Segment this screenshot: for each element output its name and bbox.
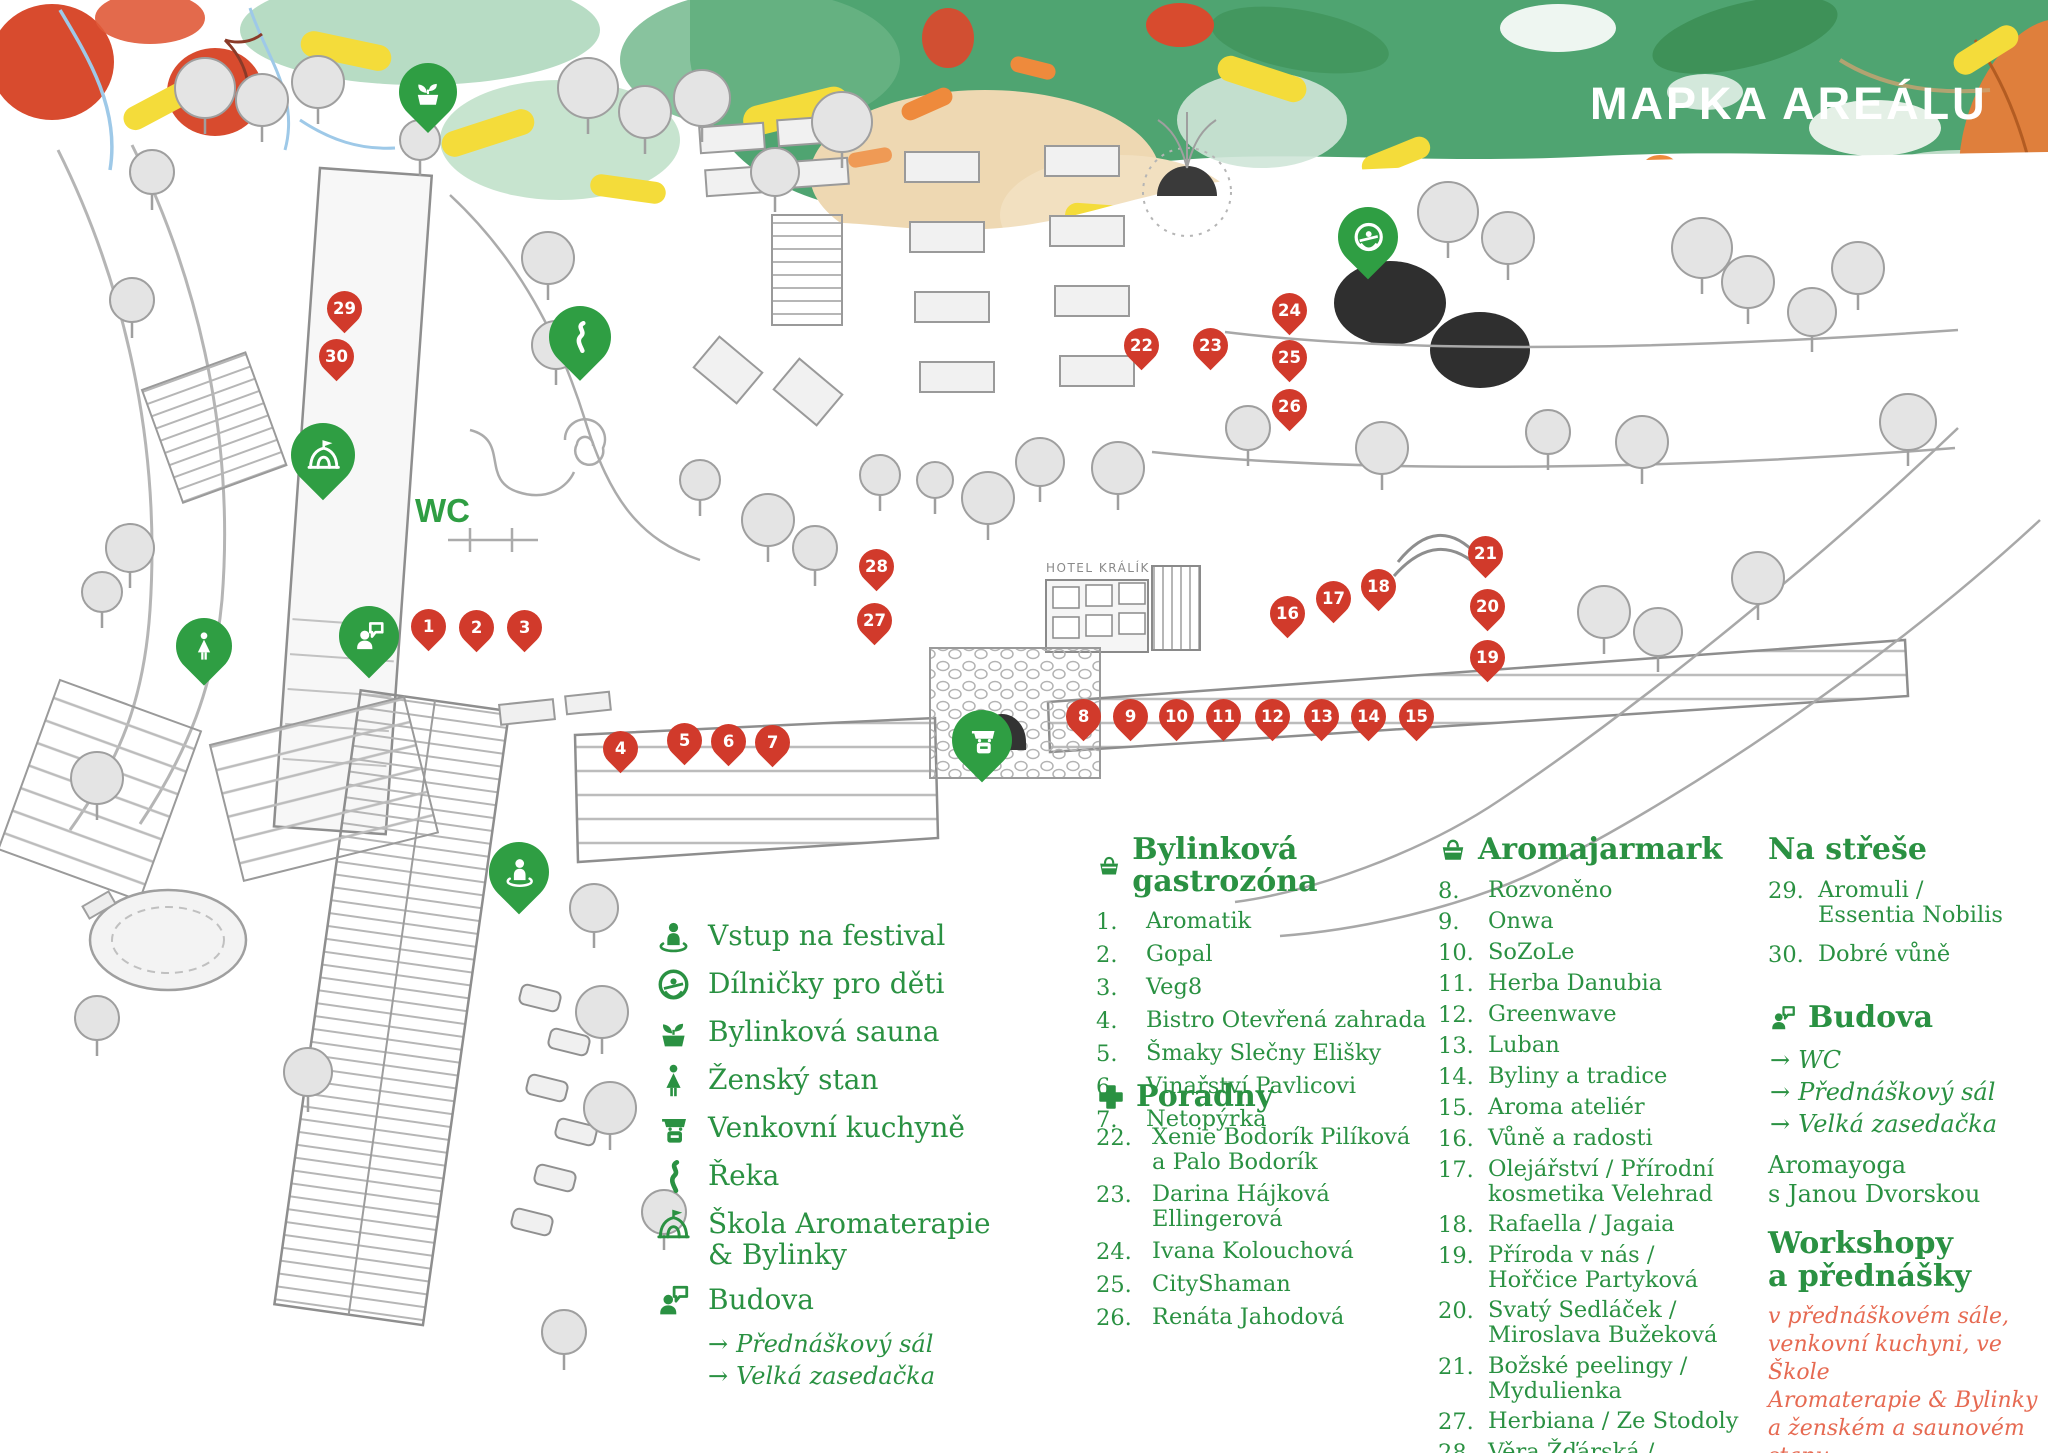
section-title: Budova [1808, 1002, 1933, 1034]
kitchen-icon [655, 1110, 692, 1147]
sauna-icon [655, 1014, 692, 1051]
section-aromajarmark: Aromajarmark 8.Rozvoněno9.Onwa10.SoZoLe1… [1438, 834, 1778, 1453]
list-item-name: Aromatik [1146, 909, 1448, 935]
list-item-name: Olejářství / Přírodní kosmetika Velehrad [1488, 1157, 1778, 1207]
map-pin-kids [1338, 207, 1398, 267]
list-item-name: CityShaman [1152, 1272, 1462, 1298]
map-pin-24: 24 [1272, 293, 1307, 328]
map-pin-river [549, 306, 611, 368]
entry-icon [502, 855, 537, 890]
list-item-number: 10. [1438, 940, 1488, 966]
list-item-name: Věra Žďárská / Květomluva [1488, 1440, 1778, 1453]
list-item-name: Byliny a tradice [1488, 1064, 1778, 1090]
map-pin-23: 23 [1193, 328, 1228, 363]
kids-icon [1351, 220, 1386, 255]
legend-item-label: Venkovní kuchyně [708, 1110, 965, 1143]
sauna-icon [411, 75, 445, 109]
map-pin-1: 1 [411, 609, 446, 644]
workshops-note: v přednáškovém sále, venkovní kuchyni, v… [1768, 1303, 2048, 1453]
legend-item-label: Budova [708, 1282, 814, 1315]
map-pin-14: 14 [1351, 699, 1386, 734]
section-aromajarmark-header: Aromajarmark [1438, 834, 1778, 866]
section-title: Bylinková gastrozóna [1132, 834, 1448, 897]
list-item-name: Herbiana / Ze Stodoly [1488, 1409, 1778, 1435]
legend-item: Dílničky pro děti [655, 966, 1000, 1003]
map-pin-16: 16 [1270, 596, 1305, 631]
list-item-number: 8. [1438, 878, 1488, 904]
river-icon [655, 1158, 692, 1195]
arrow-icon: → [708, 1362, 728, 1390]
list-item-name: Šmaky Slečny Elišky [1146, 1041, 1448, 1067]
kitchen-icon [965, 723, 1000, 758]
list-item-name: Veg8 [1146, 975, 1448, 1001]
list-item-number: 14. [1438, 1064, 1488, 1090]
map-pin-sauna [399, 63, 457, 121]
section-budova-header: Budova [1768, 1002, 2048, 1034]
list-item-number: 4. [1096, 1008, 1146, 1034]
map-pin-7: 7 [755, 725, 790, 760]
list-item-number: 18. [1438, 1212, 1488, 1238]
legend-item-label: Ženský stan [708, 1062, 878, 1095]
budova-arrow-item: →Velká zasedačka [1770, 1109, 2048, 1141]
festival-area-map: HOTEL KRÁLÍK [0, 0, 2048, 1453]
building-icon [352, 619, 387, 654]
workshops-title: Workshopy a přednášky [1768, 1227, 2048, 1293]
list-item-name: Herba Danubia [1488, 971, 1778, 997]
budova-arrow-item: →Přednáškový sál [1770, 1077, 2048, 1109]
budova-arrow-list: →WC→Přednáškový sál→Velká zasedačka [1770, 1045, 2048, 1141]
woman-icon [655, 1062, 692, 1099]
arrow-icon: → [708, 1330, 728, 1358]
woman-icon [188, 630, 220, 662]
section-poradny: Poradny 22.Xenie Bodorík Pilíková a Palo… [1096, 1081, 1462, 1331]
map-pin-26: 26 [1272, 389, 1307, 424]
map-wc-label: WC [415, 492, 470, 530]
map-pin-22: 22 [1124, 328, 1159, 363]
list-item-number: 21. [1438, 1354, 1488, 1404]
legend-item-label: Bylinková sauna [708, 1014, 939, 1047]
arrow-icon: → [1770, 1046, 1790, 1074]
list-item-number: 27. [1438, 1409, 1488, 1435]
list-item-name: Bistro Otevřená zahrada [1146, 1008, 1448, 1034]
cross-icon [1096, 1082, 1126, 1112]
legend-item-label: Vstup na festival [708, 918, 945, 951]
list-item-number: 24. [1096, 1239, 1152, 1265]
list-item-number: 15. [1438, 1095, 1488, 1121]
map-pin-18: 18 [1361, 569, 1396, 604]
section-title: Poradny [1136, 1081, 1273, 1113]
map-pin-13: 13 [1304, 699, 1339, 734]
school-icon [655, 1206, 692, 1243]
section-right-column: Na střeše 29.Aromuli / Essentia Nobilis3… [1768, 834, 2048, 1453]
map-pin-27: 27 [857, 603, 892, 638]
map-pin-building [339, 606, 399, 666]
legend-item: Řeka [655, 1158, 1000, 1195]
list-item-name: Dobré vůně [1818, 942, 2048, 968]
legend-item: Vstup na festival [655, 918, 1000, 955]
list-item-number: 3. [1096, 975, 1146, 1001]
map-hotel-label: HOTEL KRÁLÍK [1046, 560, 1150, 575]
list-item-number: 17. [1438, 1157, 1488, 1207]
legend-item-label: Škola Aromaterapie & Bylinky [708, 1206, 991, 1271]
section-title: Aromajarmark [1478, 834, 1722, 866]
list-item-number: 29. [1768, 878, 1818, 928]
list-item-name: Luban [1488, 1033, 1778, 1059]
map-pin-30: 30 [319, 339, 354, 374]
list-item-number: 1. [1096, 909, 1146, 935]
map-pin-12: 12 [1255, 699, 1290, 734]
legend-item-label: Dílničky pro děti [708, 966, 944, 999]
legend-subitems: →Přednáškový sál→Velká zasedačka [708, 1328, 1000, 1393]
kids-icon [655, 966, 692, 1003]
section-gastrozone-header: Bylinková gastrozóna [1096, 834, 1448, 897]
map-pin-2: 2 [459, 610, 494, 645]
legend-item: Budova [655, 1282, 1000, 1319]
section-roof-header: Na střeše [1768, 834, 2048, 866]
map-pin-woman [176, 618, 232, 674]
list-item-name: Renáta Jahodová [1152, 1305, 1462, 1331]
building-icon [655, 1282, 692, 1319]
list-item-number: 9. [1438, 909, 1488, 935]
list-item-number: 22. [1096, 1125, 1152, 1175]
list-item-number: 28. [1438, 1440, 1488, 1453]
list-item-name: Božské peelingy / Mydulienka [1488, 1354, 1778, 1404]
list-item-number: 12. [1438, 1002, 1488, 1028]
map-pin-17: 17 [1316, 581, 1351, 616]
list-item-name: Rozvoněno [1488, 878, 1778, 904]
map-pin-school [291, 423, 355, 487]
map-pin-29: 29 [327, 291, 362, 326]
map-pin-8: 8 [1066, 699, 1101, 734]
list-item-number: 23. [1096, 1182, 1152, 1232]
list-item-number: 11. [1438, 971, 1488, 997]
list-item-number: 20. [1438, 1298, 1488, 1348]
list-item-name: Příroda v nás / Hořčice Partyková [1488, 1243, 1778, 1293]
list-item-name: Svatý Sedláček / Miroslava Bužeková [1488, 1298, 1778, 1348]
map-pin-kitchen [952, 710, 1012, 770]
legend-item: Venkovní kuchyně [655, 1110, 1000, 1147]
budova-arrow-item: →WC [1770, 1045, 2048, 1077]
school-icon [305, 437, 342, 474]
river-icon [562, 319, 598, 355]
list-item-name: Aroma ateliér [1488, 1095, 1778, 1121]
page-title: MAPKA AREÁLU [1590, 78, 1988, 130]
arrow-icon: → [1770, 1078, 1790, 1106]
list-item-number: 16. [1438, 1126, 1488, 1152]
list-item-name: SoZoLe [1488, 940, 1778, 966]
list-item-name: Onwa [1488, 909, 1778, 935]
entry-icon [655, 918, 692, 955]
map-pin-21: 21 [1468, 536, 1503, 571]
list-item-name: Ivana Kolouchová [1152, 1239, 1462, 1265]
map-pin-9: 9 [1113, 699, 1148, 734]
map-pin-11: 11 [1206, 699, 1241, 734]
list-item-name: Rafaella / Jagaia [1488, 1212, 1778, 1238]
basket-icon [1096, 851, 1122, 881]
section-title: Na střeše [1768, 834, 1927, 866]
legend-general: Vstup na festivalDílničky pro dětiBylink… [655, 918, 1000, 1393]
legend-subitem: →Přednáškový sál [708, 1328, 1000, 1360]
budova-extra: Aromayoga s Janou Dvorskou [1768, 1151, 2048, 1209]
map-pin-4: 4 [603, 731, 638, 766]
map-pin-3: 3 [507, 610, 542, 645]
map-pin-19: 19 [1470, 640, 1505, 675]
list-item-number: 13. [1438, 1033, 1488, 1059]
legend-item: Ženský stan [655, 1062, 1000, 1099]
list-item-number: 5. [1096, 1041, 1146, 1067]
list-item-name: Aromuli / Essentia Nobilis [1818, 878, 2048, 928]
legend-item: Škola Aromaterapie & Bylinky [655, 1206, 1000, 1271]
list-item-name: Gopal [1146, 942, 1448, 968]
map-pin-6: 6 [711, 724, 746, 759]
map-pin-25: 25 [1272, 340, 1307, 375]
legend-item: Bylinková sauna [655, 1014, 1000, 1051]
map-pin-10: 10 [1159, 699, 1194, 734]
roof-list: 29.Aromuli / Essentia Nobilis30.Dobré vů… [1768, 878, 2048, 968]
list-item-number: 30. [1768, 942, 1818, 968]
list-item-name: Greenwave [1488, 1002, 1778, 1028]
list-item-number: 25. [1096, 1272, 1152, 1298]
list-item-number: 19. [1438, 1243, 1488, 1293]
legend-list: Vstup na festivalDílničky pro dětiBylink… [655, 918, 1000, 1393]
arrow-icon: → [1770, 1110, 1790, 1138]
legend-item-label: Řeka [708, 1158, 779, 1191]
map-pin-15: 15 [1399, 699, 1434, 734]
map-pin-28: 28 [859, 549, 894, 584]
list-item-number: 2. [1096, 942, 1146, 968]
basket-icon [1438, 835, 1468, 865]
list-item-name: Darina Hájková Ellingerová [1152, 1182, 1462, 1232]
legend-subitem: →Velká zasedačka [708, 1360, 1000, 1392]
aromajarmark-list: 8.Rozvoněno9.Onwa10.SoZoLe11.Herba Danub… [1438, 878, 1778, 1453]
list-item-name: Vůně a radosti [1488, 1126, 1778, 1152]
map-pin-20: 20 [1470, 589, 1505, 624]
map-pin-5: 5 [667, 723, 702, 758]
building-icon [1768, 1003, 1798, 1033]
map-pin-entry [489, 842, 549, 902]
list-item-number: 26. [1096, 1305, 1152, 1331]
section-poradny-header: Poradny [1096, 1081, 1462, 1113]
poradny-list: 22.Xenie Bodorík Pilíková a Palo Bodorík… [1096, 1125, 1462, 1332]
list-item-name: Xenie Bodorík Pilíková a Palo Bodorík [1152, 1125, 1462, 1175]
